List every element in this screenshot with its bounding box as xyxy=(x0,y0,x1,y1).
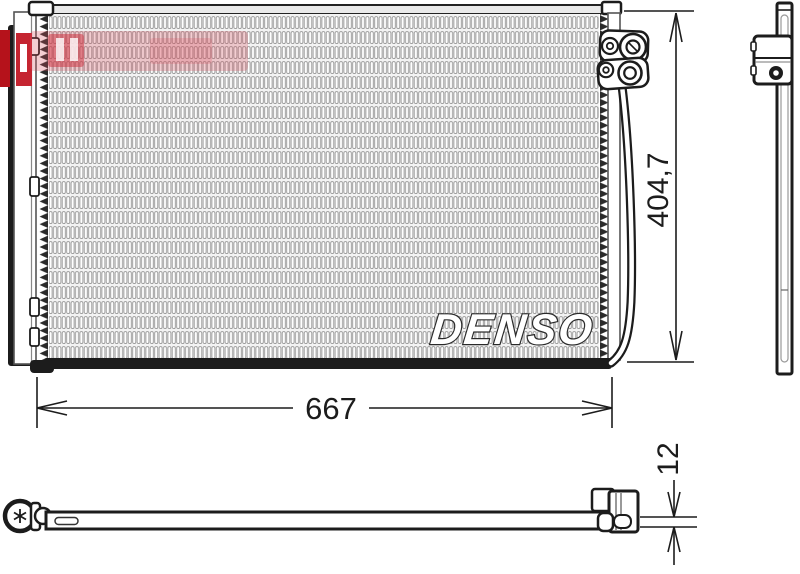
fitting-port xyxy=(598,513,613,531)
condenser-bottom-view: 12 xyxy=(5,442,697,565)
condenser-side-view xyxy=(751,3,792,374)
bar-slot xyxy=(55,518,78,525)
lower-bolt-hole-center xyxy=(603,67,609,73)
bottom-left-foot xyxy=(30,360,54,373)
bottom-view-fitting xyxy=(592,489,638,532)
bolt-head-center xyxy=(773,70,779,76)
bottom-plate xyxy=(44,358,612,369)
mount-tab xyxy=(30,328,39,346)
fitting-oval xyxy=(614,515,631,528)
top-left-cap xyxy=(29,2,53,15)
upper-bolt-hole-center xyxy=(607,43,613,49)
side-block-notch xyxy=(751,42,756,51)
height-dimension-label: 404,7 xyxy=(642,152,675,227)
lower-port-inner xyxy=(624,67,636,79)
bottom-view-bar xyxy=(46,512,612,529)
width-dimension-label: 667 xyxy=(305,391,357,426)
denso-logo: DENSO xyxy=(429,306,597,354)
mount-tab xyxy=(30,298,39,316)
top-plate xyxy=(46,5,612,14)
condenser-technical-drawing: DENSO 404,7 667 xyxy=(0,0,800,574)
drawing-stage: DENSO 404,7 667 xyxy=(0,0,800,574)
dimension-width: 667 xyxy=(37,377,612,428)
dimension-thickness: 12 xyxy=(640,442,697,565)
connector-fittings xyxy=(597,30,649,90)
mount-tab xyxy=(30,177,39,196)
side-block-notch xyxy=(751,66,756,75)
thickness-dimension-label: 12 xyxy=(652,442,685,475)
